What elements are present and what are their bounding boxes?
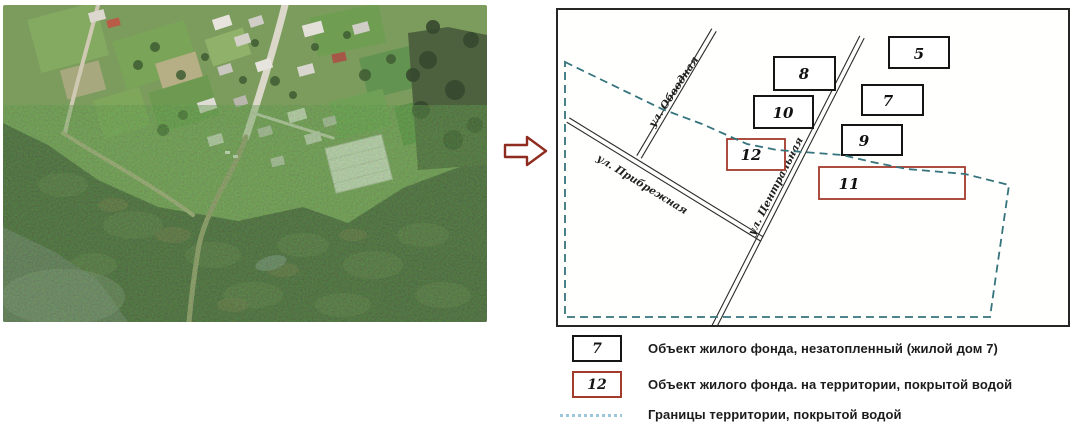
legend-text-dry: Объект жилого фонда, незатопленный (жило… (648, 341, 998, 356)
building-label-12: 12 (741, 146, 762, 164)
street-label-pribrezhnaya: ул. Прибрежная (594, 152, 690, 217)
building-label-8: 8 (799, 65, 810, 83)
legend-symbol-flooded-number: 12 (587, 377, 606, 393)
legend-symbol-flooded-building: 12 (572, 371, 622, 398)
map-building-9 (842, 125, 902, 155)
legend-text-flooded: Объект жилого фонда. на территории, покр… (648, 377, 1012, 392)
transform-arrow-icon (502, 132, 550, 172)
building-label-7: 7 (883, 92, 894, 110)
building-label-5: 5 (914, 45, 924, 63)
building-label-11: 11 (839, 175, 860, 193)
legend-text-boundary: Границы территории, покрытой водой (648, 407, 902, 422)
legend-symbol-dry-building: 7 (572, 335, 622, 362)
building-label-9: 9 (859, 132, 870, 150)
building-label-10: 10 (773, 104, 794, 122)
legend-symbol-dry-number: 7 (592, 341, 602, 357)
legend: 7 Объект жилого фонда, незатопленный (жи… (556, 330, 1071, 425)
flood-map-panel: ул. Обводная ул. Прибрежная ул. Централь… (556, 8, 1070, 327)
aerial-photo (3, 5, 487, 322)
street-label-obvodnaya: ул. Обводная (646, 54, 701, 130)
figure: ул. Обводная ул. Прибрежная ул. Централь… (0, 0, 1074, 426)
legend-symbol-boundary-dash (560, 414, 622, 417)
street-pribrezhnaya (567, 118, 764, 241)
